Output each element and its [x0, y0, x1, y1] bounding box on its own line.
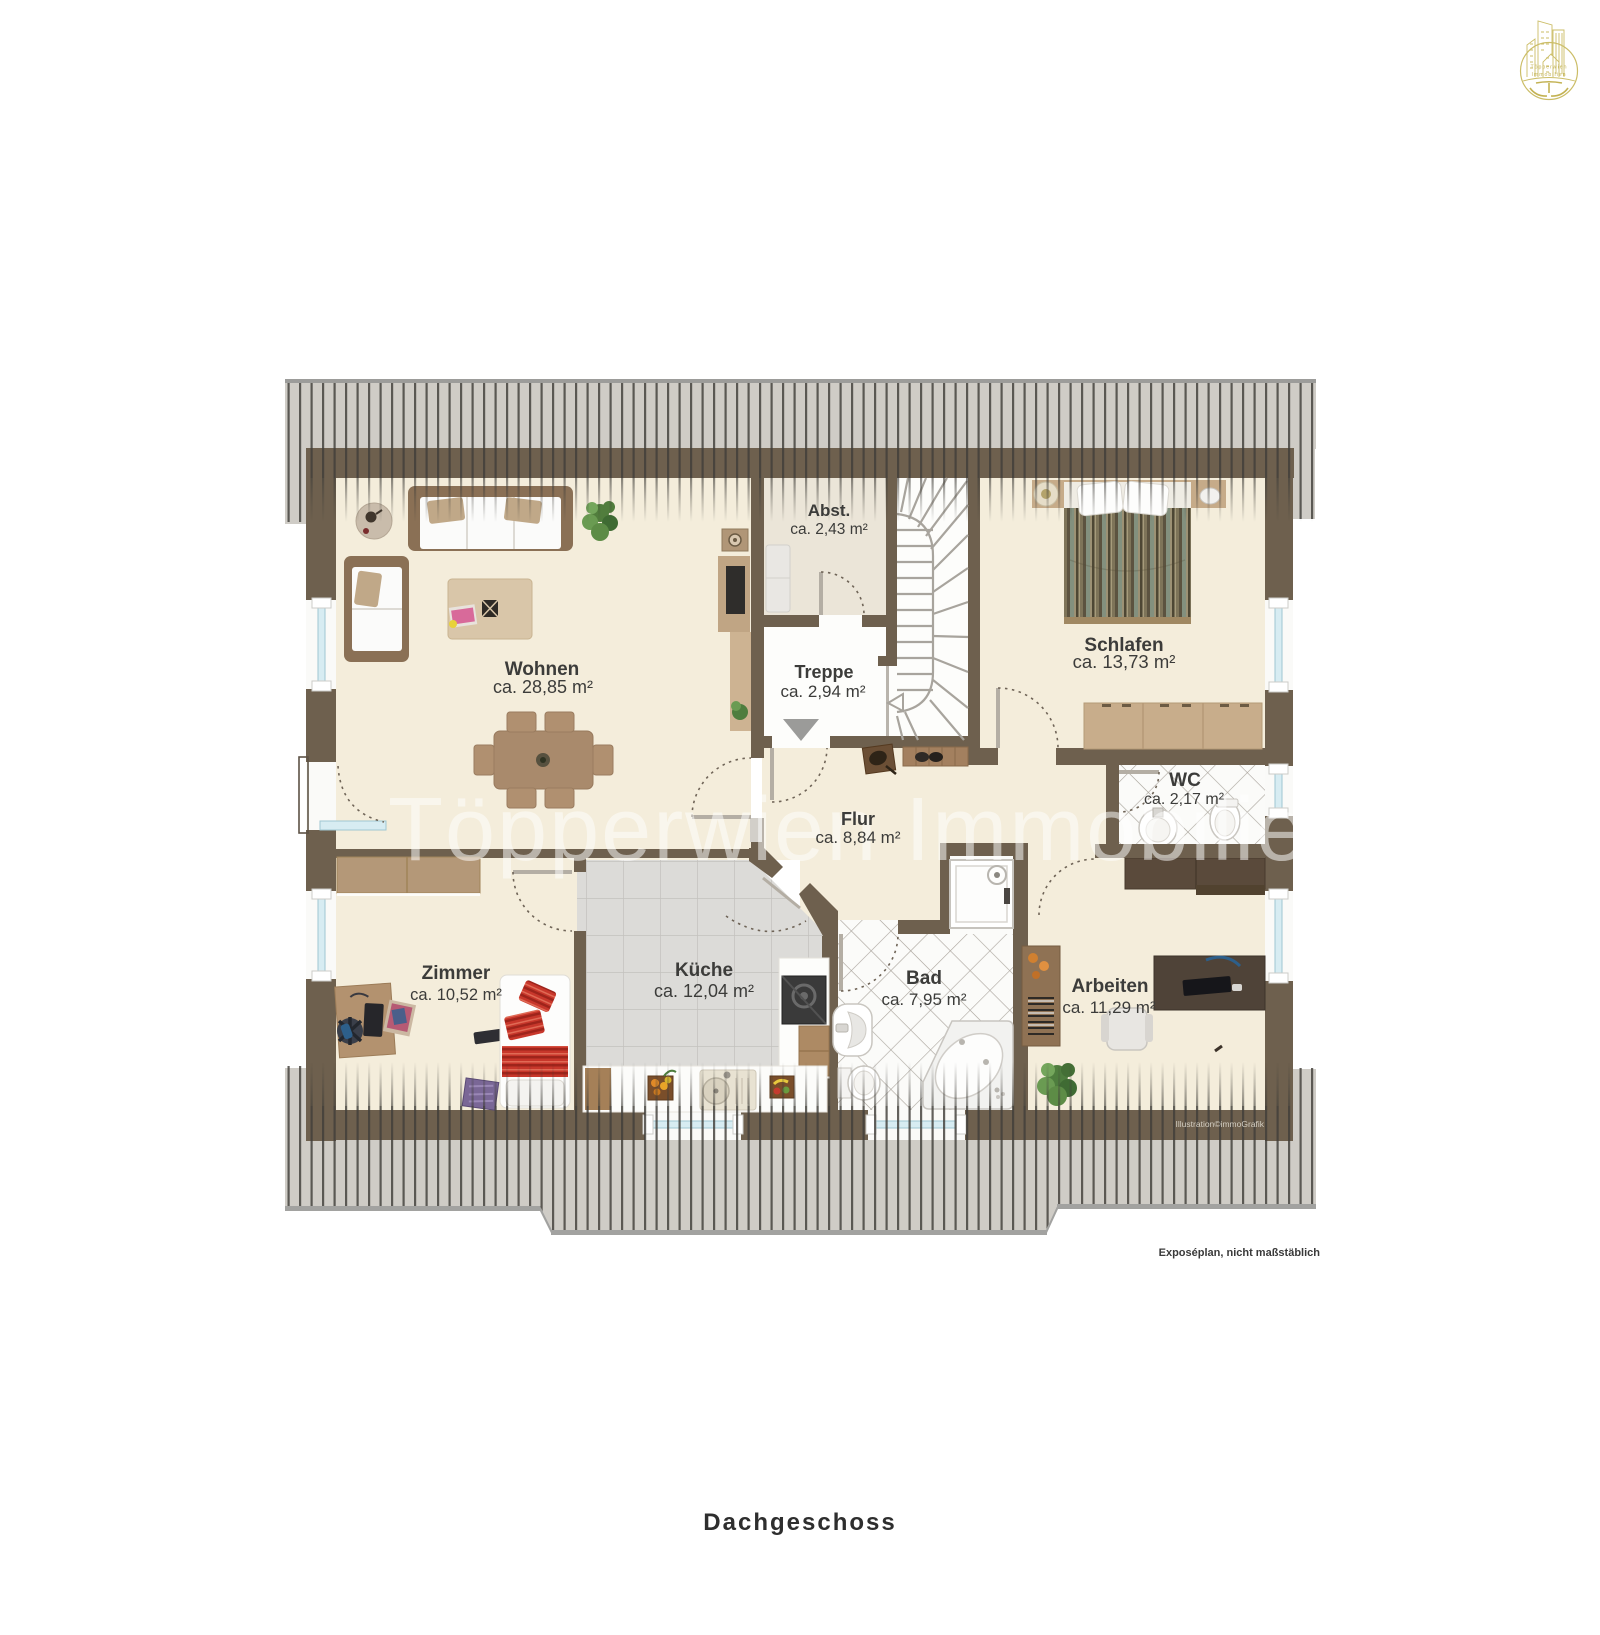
svg-text:Arbeiten: Arbeiten [1071, 976, 1148, 997]
svg-text:Töpperwien: Töpperwien [1530, 65, 1567, 71]
svg-text:ca. 28,85 m²: ca. 28,85 m² [493, 677, 593, 697]
svg-text:Illustration©immoGrafik: Illustration©immoGrafik [1176, 1119, 1265, 1129]
svg-text:Dachgeschoss: Dachgeschoss [703, 1509, 896, 1536]
svg-text:ca. 10,52 m²: ca. 10,52 m² [410, 986, 502, 1004]
svg-text:ca. 2,43 m²: ca. 2,43 m² [790, 521, 868, 538]
svg-text:ca. 13,73 m²: ca. 13,73 m² [1073, 651, 1176, 672]
svg-text:Abst.: Abst. [808, 501, 851, 520]
svg-text:Flur: Flur [841, 809, 875, 829]
svg-text:ca. 2,94 m²: ca. 2,94 m² [780, 682, 865, 701]
svg-text:ca. 11,29 m²: ca. 11,29 m² [1062, 998, 1156, 1017]
svg-text:Zimmer: Zimmer [422, 963, 491, 984]
svg-text:Küche: Küche [675, 960, 733, 981]
svg-text:ca. 7,95 m²: ca. 7,95 m² [881, 990, 966, 1009]
svg-text:WC: WC [1169, 770, 1201, 791]
svg-text:Exposéplan, nicht maßstäblich: Exposéplan, nicht maßstäblich [1159, 1247, 1321, 1259]
svg-text:Bad: Bad [906, 968, 942, 989]
svg-text:Treppe: Treppe [794, 662, 853, 682]
svg-text:ca. 12,04 m²: ca. 12,04 m² [654, 981, 754, 1001]
svg-text:ca. 2,17 m²: ca. 2,17 m² [1144, 791, 1225, 808]
svg-text:ca. 8,84 m²: ca. 8,84 m² [815, 828, 900, 847]
svg-text:Immobilien: Immobilien [1531, 72, 1566, 78]
